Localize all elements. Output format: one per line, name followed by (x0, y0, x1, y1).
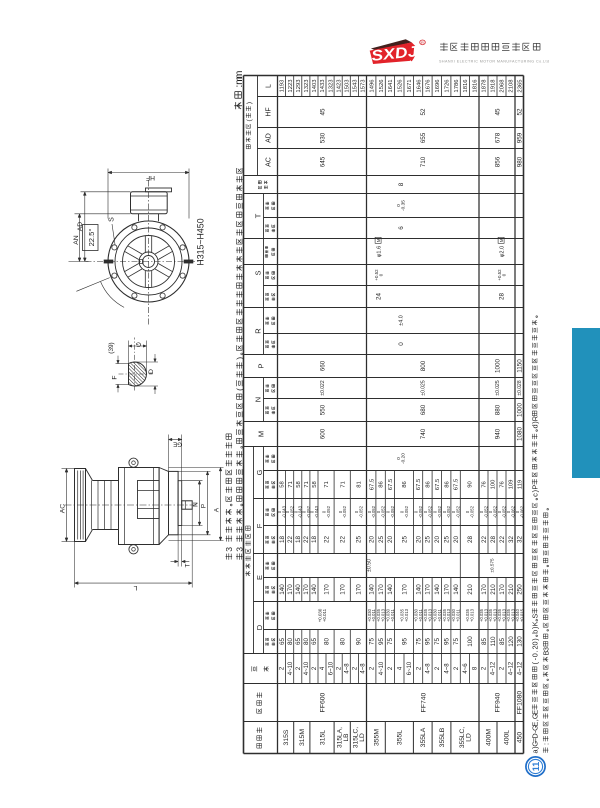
svg-text:1526: 1526 (378, 78, 384, 92)
svg-text:660: 660 (319, 360, 326, 371)
svg-text:1543: 1543 (352, 78, 358, 92)
svg-text:±0.575: ±0.575 (489, 558, 494, 572)
svg-text:980: 980 (516, 156, 523, 167)
svg-text:2: 2 (352, 666, 358, 670)
svg-text:1696: 1696 (435, 78, 441, 92)
svg-text:2: 2 (279, 666, 285, 670)
svg-text:4~8: 4~8 (360, 662, 366, 673)
svg-text:67.5: 67.5 (434, 478, 440, 490)
svg-text:170: 170 (443, 583, 450, 594)
svg-text:d: d (530, 424, 539, 428)
svg-text:GE: GE (173, 440, 182, 446)
svg-text:4~8: 4~8 (344, 662, 350, 673)
svg-text:1503: 1503 (344, 78, 350, 92)
svg-text:F: F (111, 375, 118, 379)
svg-text:856: 856 (494, 156, 501, 167)
svg-text:-0.052: -0.052 (371, 505, 376, 518)
svg-text:80: 80 (339, 637, 346, 645)
svg-text:20: 20 (368, 535, 375, 543)
svg-text:0: 0 (378, 273, 383, 276)
svg-text:L: L (265, 83, 272, 87)
svg-text:140: 140 (311, 583, 318, 594)
svg-text:1080: 1080 (516, 426, 523, 441)
svg-text:2: 2 (499, 666, 505, 670)
svg-text:FF1080: FF1080 (516, 690, 523, 714)
svg-text:1816: 1816 (472, 78, 478, 92)
svg-text:25: 25 (443, 535, 450, 543)
svg-text:25: 25 (355, 535, 362, 543)
svg-text:2108: 2108 (508, 78, 514, 92)
svg-text:(39): (39) (108, 342, 115, 353)
svg-text:φ1.6: φ1.6 (376, 245, 382, 256)
svg-text:800: 800 (420, 360, 427, 371)
svg-text:140: 140 (415, 583, 422, 594)
svg-text:71: 71 (340, 481, 346, 488)
svg-text:G: G (254, 469, 263, 475)
svg-text:+0.011: +0.011 (389, 608, 394, 621)
svg-text:T: T (184, 563, 191, 567)
svg-text:+0.011: +0.011 (418, 608, 423, 621)
svg-text:58: 58 (295, 480, 301, 487)
svg-text:M: M (256, 430, 265, 436)
svg-text:4~12: 4~12 (490, 661, 496, 675)
svg-text:M: M (376, 238, 381, 242)
svg-text:170: 170 (303, 583, 310, 594)
svg-text:2: 2 (312, 666, 318, 670)
svg-text:67.5: 67.5 (416, 478, 422, 490)
svg-text:52: 52 (516, 108, 523, 116)
svg-text:52: 52 (420, 108, 427, 116)
svg-text:22.5°: 22.5° (87, 228, 96, 246)
svg-text:-0.052: -0.052 (326, 505, 331, 518)
svg-text:2: 2 (388, 666, 394, 670)
svg-text:22: 22 (498, 535, 505, 543)
svg-text:1726: 1726 (444, 78, 450, 92)
svg-text:119: 119 (517, 479, 523, 488)
svg-text:1293: 1293 (295, 78, 301, 92)
svg-text:1573: 1573 (360, 78, 366, 92)
svg-text:680: 680 (420, 404, 427, 415)
svg-text:HF: HF (265, 107, 272, 116)
svg-text:2: 2 (369, 666, 375, 670)
svg-text:+0.011: +0.011 (455, 608, 460, 621)
svg-text:85: 85 (480, 637, 487, 645)
svg-text:18: 18 (278, 535, 285, 543)
svg-text:140: 140 (278, 583, 285, 594)
svg-text:-0.20: -0.20 (400, 452, 406, 463)
svg-text:R: R (530, 415, 539, 420)
svg-text:1433: 1433 (320, 78, 326, 92)
svg-text:32: 32 (507, 535, 514, 543)
svg-text:22: 22 (286, 535, 293, 543)
svg-text:2: 2 (481, 666, 487, 670)
svg-text:+0.013: +0.013 (427, 608, 432, 622)
svg-text:355L: 355L (396, 729, 403, 744)
svg-text:45: 45 (319, 108, 326, 116)
svg-text:450: 450 (516, 731, 523, 743)
svg-text:400M: 400M (485, 728, 492, 745)
svg-text:86: 86 (425, 480, 431, 487)
svg-text:c: c (530, 492, 539, 496)
svg-text:95: 95 (424, 637, 431, 645)
svg-text:71: 71 (303, 481, 309, 488)
svg-text:959: 959 (516, 132, 523, 143)
svg-text:1671: 1671 (406, 79, 412, 92)
svg-text:170: 170 (323, 583, 330, 594)
svg-text::: : (541, 742, 550, 744)
svg-text:-0.062: -0.062 (519, 505, 524, 518)
svg-text:4: 4 (320, 666, 326, 670)
svg-text:P: P (256, 363, 265, 368)
svg-text:110: 110 (489, 635, 496, 646)
svg-text:+0.013: +0.013 (469, 608, 474, 622)
svg-text:355LA: 355LA (420, 727, 427, 747)
svg-text:315M: 315M (299, 728, 306, 745)
svg-text:22: 22 (323, 535, 330, 543)
svg-text:32: 32 (516, 535, 523, 543)
svg-text:1526: 1526 (397, 78, 403, 92)
svg-text:±0.025: ±0.025 (494, 380, 500, 395)
svg-text:530: 530 (319, 132, 326, 143)
svg-text:130: 130 (516, 635, 523, 646)
svg-text:75: 75 (368, 637, 375, 645)
svg-text:): ) (530, 638, 539, 640)
svg-text:6: 6 (397, 225, 404, 229)
svg-text:1816: 1816 (463, 78, 469, 92)
svg-text:740: 740 (420, 428, 427, 439)
svg-text:LB: LB (342, 732, 349, 741)
svg-text:LD: LD (359, 733, 366, 742)
svg-text:G: G (135, 340, 140, 347)
svg-text:AC: AC (59, 503, 66, 513)
svg-text:1676: 1676 (425, 78, 431, 92)
svg-text:P: P (200, 503, 207, 507)
svg-text:-: - (530, 657, 539, 660)
svg-text:20: 20 (387, 535, 394, 543)
svg-text:-0.052: -0.052 (469, 505, 474, 518)
svg-text:75: 75 (452, 637, 459, 645)
svg-text:140: 140 (452, 583, 459, 594)
svg-text:E: E (530, 721, 539, 726)
svg-text:645: 645 (319, 156, 326, 167)
svg-text:25: 25 (377, 535, 384, 543)
svg-text:75: 75 (434, 637, 441, 645)
svg-text:E: E (530, 709, 539, 714)
svg-text:±0.025: ±0.025 (420, 380, 426, 395)
svg-text:S: S (108, 216, 115, 221)
svg-text:1150: 1150 (516, 358, 523, 372)
svg-text:HF: HF (145, 174, 154, 181)
svg-text:+0.013: +0.013 (446, 608, 451, 622)
svg-text:65: 65 (311, 637, 318, 645)
svg-text:170: 170 (480, 583, 487, 594)
svg-text:A: A (213, 507, 220, 512)
svg-text:100: 100 (490, 478, 496, 489)
svg-text:FF740: FF740 (420, 692, 427, 712)
svg-text:67.5: 67.5 (453, 478, 459, 490)
svg-text:75: 75 (415, 637, 422, 645)
svg-text:22: 22 (303, 535, 310, 543)
svg-text:FF940: FF940 (494, 692, 501, 712)
svg-text:6~10: 6~10 (328, 661, 334, 675)
svg-text:AC: AC (265, 157, 272, 167)
svg-text:-0.052: -0.052 (342, 505, 347, 518)
svg-text:170: 170 (355, 583, 362, 594)
svg-text:140: 140 (387, 583, 394, 594)
svg-text:1786: 1786 (453, 78, 459, 92)
svg-text:58: 58 (279, 480, 285, 487)
svg-text:S: S (253, 270, 262, 275)
svg-text:80: 80 (323, 637, 330, 645)
svg-text:67.5: 67.5 (369, 478, 375, 490)
svg-text:K: K (530, 621, 539, 626)
svg-text:.: . (530, 650, 539, 652)
svg-text:355LB: 355LB (438, 727, 445, 747)
svg-text:0: 0 (501, 273, 506, 276)
svg-text:170: 170 (498, 583, 505, 594)
svg-text:75: 75 (387, 637, 394, 645)
svg-text:4~6: 4~6 (463, 662, 469, 673)
svg-text:H315~H450: H315~H450 (195, 218, 205, 265)
svg-text:+0.013: +0.013 (404, 608, 409, 622)
svg-text:4~10: 4~10 (378, 661, 384, 675)
svg-text:315L: 315L (319, 729, 326, 744)
svg-text:1000: 1000 (494, 358, 501, 373)
svg-text:m: m (233, 70, 245, 79)
svg-text:1423: 1423 (336, 78, 342, 92)
svg-text:+0.011: +0.011 (371, 608, 376, 621)
svg-text:86: 86 (444, 480, 450, 487)
svg-text:4~12: 4~12 (517, 661, 523, 675)
svg-text:R: R (253, 327, 262, 333)
svg-text:1641: 1641 (388, 79, 394, 92)
svg-text:1496: 1496 (369, 78, 375, 92)
svg-text:1000: 1000 (516, 402, 523, 417)
svg-text:-0.052: -0.052 (358, 505, 363, 518)
svg-text:28: 28 (489, 535, 496, 543)
svg-text:FF600: FF600 (319, 692, 326, 712)
svg-text:6~10: 6~10 (406, 661, 412, 675)
svg-text:4: 4 (397, 666, 403, 670)
svg-text:±0.50: ±0.50 (366, 558, 372, 571)
svg-text:D: D (147, 368, 154, 373)
svg-text:3: 3 (234, 546, 244, 551)
svg-text:-0.35: -0.35 (400, 199, 406, 210)
svg-text:170: 170 (286, 583, 293, 594)
svg-text:0: 0 (530, 653, 539, 657)
svg-text:86: 86 (402, 480, 408, 487)
svg-text:67.5: 67.5 (388, 478, 394, 490)
svg-text:71: 71 (324, 481, 330, 488)
svg-text:1878: 1878 (481, 78, 487, 92)
svg-text:28: 28 (498, 292, 505, 300)
svg-text:1918: 1918 (490, 78, 496, 92)
svg-text:D: D (254, 624, 263, 630)
svg-text:600: 600 (319, 428, 326, 439)
svg-text:): ) (245, 101, 252, 103)
svg-text:22: 22 (480, 535, 487, 543)
svg-text:-0.052: -0.052 (380, 505, 385, 518)
svg-text:-0.043: -0.043 (313, 505, 318, 518)
svg-text:8: 8 (472, 666, 478, 670)
svg-text:170: 170 (377, 583, 384, 594)
svg-text:0: 0 (530, 641, 539, 645)
svg-text:120: 120 (507, 635, 514, 646)
svg-text:±0.022: ±0.022 (319, 380, 325, 395)
svg-text:58: 58 (312, 480, 318, 487)
svg-text:-0.052: -0.052 (427, 505, 432, 518)
svg-text:1223: 1223 (287, 78, 293, 92)
svg-text:109: 109 (508, 479, 514, 489)
svg-text:+0.011: +0.011 (436, 608, 441, 621)
svg-text:D: D (530, 733, 539, 738)
svg-text:170: 170 (339, 583, 346, 594)
svg-text:655: 655 (420, 132, 427, 143)
svg-text:AD: AD (265, 133, 272, 143)
svg-text:8: 8 (397, 182, 404, 186)
svg-text:170: 170 (401, 583, 408, 594)
svg-text:940: 940 (494, 428, 501, 439)
svg-text:2365: 2365 (517, 78, 523, 92)
svg-text:+0.013: +0.013 (380, 608, 385, 622)
svg-text:2: 2 (435, 666, 441, 670)
svg-text:710: 710 (420, 156, 427, 167)
svg-text:18: 18 (295, 535, 302, 543)
svg-text:24: 24 (375, 292, 382, 300)
svg-text:81: 81 (356, 481, 362, 488)
svg-text:N: N (192, 501, 199, 506)
svg-text:315S: 315S (283, 729, 290, 745)
svg-text:1323: 1323 (304, 78, 310, 92)
svg-text:(: ( (530, 661, 539, 664)
svg-text:b: b (530, 629, 539, 633)
svg-text:95: 95 (377, 637, 384, 645)
svg-text:80: 80 (286, 637, 293, 645)
svg-text:1193: 1193 (279, 78, 285, 91)
svg-text:18: 18 (311, 535, 318, 543)
svg-text:65: 65 (295, 637, 302, 645)
svg-text:1323: 1323 (328, 78, 334, 92)
svg-text:S: S (530, 613, 539, 618)
svg-text:1403: 1403 (312, 78, 318, 92)
svg-text:±4.0: ±4.0 (398, 315, 404, 325)
svg-text:): ) (530, 489, 539, 491)
svg-text:2068: 2068 (499, 78, 505, 92)
svg-text:+0.015: +0.015 (519, 608, 524, 622)
svg-text:71: 71 (287, 481, 293, 488)
svg-text:85: 85 (498, 637, 505, 645)
svg-text:20: 20 (415, 535, 422, 543)
svg-text:140: 140 (434, 583, 441, 594)
svg-text:M: M (499, 238, 504, 242)
svg-text:-0.052: -0.052 (389, 505, 394, 518)
svg-text:-0.052: -0.052 (404, 505, 409, 518)
svg-text:95: 95 (401, 637, 408, 645)
svg-text:(: ( (234, 387, 244, 390)
svg-text:880: 880 (494, 404, 501, 415)
svg-text:L: L (133, 584, 137, 591)
svg-text:4~8: 4~8 (425, 662, 431, 673)
svg-text:90: 90 (355, 637, 362, 645)
svg-text:20: 20 (434, 535, 441, 543)
svg-text:LD: LD (465, 733, 472, 742)
svg-text:86: 86 (378, 480, 384, 487)
svg-text:0: 0 (397, 341, 404, 345)
svg-text:φ2.0: φ2.0 (499, 245, 505, 256)
svg-text:170: 170 (424, 583, 431, 594)
svg-text:95: 95 (443, 637, 450, 645)
svg-text:550: 550 (319, 404, 326, 415)
svg-text:76: 76 (499, 480, 505, 487)
svg-text:-0.052: -0.052 (418, 505, 423, 518)
svg-text:210: 210 (466, 583, 473, 594)
svg-text:): ) (530, 626, 539, 628)
svg-text:-0.052: -0.052 (455, 505, 460, 518)
svg-text:3: 3 (541, 647, 550, 651)
svg-text:76: 76 (481, 480, 487, 487)
svg-text:2: 2 (336, 666, 342, 670)
svg-text:+0.011: +0.011 (322, 608, 327, 622)
svg-text:28: 28 (466, 535, 473, 543)
svg-text:-0.052: -0.052 (446, 505, 451, 518)
svg-text:AN: AN (72, 235, 79, 245)
svg-text:3: 3 (224, 546, 234, 551)
svg-text:210: 210 (489, 583, 496, 594)
svg-text:): ) (234, 356, 244, 359)
svg-text:4~12: 4~12 (508, 661, 514, 675)
svg-text:P: P (530, 484, 539, 489)
svg-text:1646: 1646 (416, 78, 422, 92)
svg-text:25: 25 (424, 535, 431, 543)
svg-text:45: 45 (494, 108, 501, 116)
svg-text:E: E (254, 574, 263, 579)
svg-text:±0.028: ±0.028 (517, 380, 523, 395)
svg-text:N: N (253, 396, 262, 401)
svg-text:140: 140 (295, 583, 302, 594)
svg-text:20: 20 (452, 535, 459, 543)
svg-text:250: 250 (516, 583, 523, 594)
svg-text:25: 25 (401, 535, 408, 543)
svg-text:355M: 355M (373, 728, 380, 745)
svg-text:100: 100 (466, 635, 473, 646)
svg-text:11: 11 (531, 762, 541, 772)
svg-text:4~10: 4~10 (287, 661, 293, 675)
svg-text:(: ( (245, 118, 252, 121)
svg-text:4~10: 4~10 (304, 661, 310, 675)
svg-text:22: 22 (339, 535, 346, 543)
svg-text:T: T (253, 213, 262, 218)
svg-text:90: 90 (467, 480, 473, 487)
svg-text:F: F (254, 523, 263, 528)
svg-text:678: 678 (494, 132, 501, 143)
svg-text:2: 2 (416, 666, 422, 670)
svg-text:2: 2 (453, 666, 459, 670)
svg-text:80: 80 (303, 637, 310, 645)
svg-text:2: 2 (295, 666, 301, 670)
svg-text:4~8: 4~8 (444, 662, 450, 673)
svg-text:210: 210 (507, 583, 514, 594)
svg-text:400L: 400L (503, 729, 510, 744)
svg-text:-0.052: -0.052 (436, 505, 441, 518)
svg-text:140: 140 (368, 583, 375, 594)
svg-text:65: 65 (278, 637, 285, 645)
